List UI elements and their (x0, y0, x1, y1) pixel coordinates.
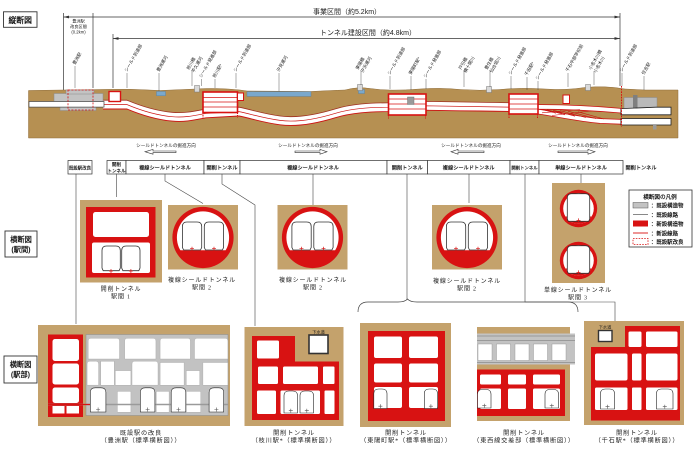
svg-text:シールド到達部: シールド到達部 (123, 42, 145, 73)
svg-text:複線シールドトンネル: 複線シールドトンネル (168, 276, 236, 284)
svg-text:汐見運河: 汐見運河 (275, 54, 290, 73)
svg-text:豊洲駅: 豊洲駅 (71, 51, 84, 66)
svg-text:シールドトンネルの掘進方向: シールドトンネルの掘進方向 (278, 142, 338, 149)
svg-text:（枝川駅*（標準横断図））: （枝川駅*（標準横断図）） (252, 437, 337, 445)
svg-text:開削トンネル: 開削トンネル (625, 164, 657, 172)
svg-text:開削トンネル: 開削トンネル (101, 285, 142, 293)
svg-text:横断図の凡例: 横断図の凡例 (643, 193, 677, 201)
svg-text:複線シールドトンネル: 複線シールドトンネル (433, 277, 501, 285)
svg-text:(駅間): (駅間) (11, 245, 31, 254)
svg-text:シールド到達部: シールド到達部 (618, 42, 640, 73)
svg-text:複線シールドトンネル: 複線シールドトンネル (442, 164, 496, 172)
svg-text:駅間 2: 駅間 2 (457, 286, 477, 293)
svg-text:シールドトンネルの掘進方向: シールドトンネルの掘進方向 (136, 142, 196, 149)
svg-text:複線シールドトンネル: 複線シールドトンネル (138, 164, 192, 172)
svg-text:開削トンネル: 開削トンネル (206, 164, 238, 172)
svg-text:下水道: 下水道 (599, 324, 612, 331)
svg-text:：既設構造物: ：既設構造物 (651, 202, 684, 210)
svg-text:横断図: 横断図 (10, 360, 32, 369)
svg-text:単線シールドトンネル: 単線シールドトンネル (555, 164, 608, 172)
svg-text:駅間 1: 駅間 1 (111, 294, 131, 301)
svg-text:：既設駅改良: ：既設駅改良 (651, 238, 684, 246)
svg-text:トンネル: トンネル (107, 168, 126, 175)
svg-text:駅間 2: 駅間 2 (192, 285, 212, 292)
svg-text:トンネル建設区間（約4.8km）: トンネル建設区間（約4.8km） (320, 28, 416, 37)
svg-text:開削トンネル: 開削トンネル (273, 429, 315, 437)
svg-text:開削: 開削 (112, 161, 122, 168)
svg-text:：既設線路: ：既設線路 (651, 211, 679, 219)
svg-text:単線シールドトンネル: 単線シールドトンネル (544, 286, 612, 294)
svg-text:シールドトンネルの掘進方向: シールドトンネルの掘進方向 (548, 142, 608, 149)
svg-text:（東西線交差部（標準横断図））: （東西線交差部（標準横断図）） (473, 437, 575, 445)
svg-text:（豊洲駅（標準横断図））: （豊洲駅（標準横断図）） (101, 437, 182, 445)
svg-text:開削トンネル: 開削トンネル (392, 164, 424, 172)
svg-text:シールド発進部: シールド発進部 (422, 48, 444, 79)
svg-text:複線シールドトンネル: 複線シールドトンネル (279, 276, 347, 284)
svg-text:開削トンネル: 開削トンネル (503, 429, 545, 437)
svg-text:千石中部学校前: 千石中部学校前 (564, 42, 586, 73)
svg-text:：新設線路: ：新設線路 (651, 230, 679, 238)
svg-text:既設駅の改良: 既設駅の改良 (120, 429, 162, 437)
svg-text:シールド発進部: シールド発進部 (534, 50, 556, 81)
svg-text:千田駅*: 千田駅* (523, 60, 537, 77)
svg-text:（東陽町駅*（標準横断図））: （東陽町駅*（標準横断図）） (360, 437, 452, 445)
svg-text:（千石駅*（標準横断図））: （千石駅*（標準横断図）） (595, 437, 680, 445)
svg-text:シールド到達部: シールド到達部 (232, 42, 254, 73)
svg-text:豊洲運河: 豊洲運河 (155, 54, 170, 73)
svg-text:複線シールドトンネル: 複線シールドトンネル (286, 164, 340, 172)
svg-text:住吉駅: 住吉駅 (640, 61, 653, 76)
svg-text:(駅部): (駅部) (11, 370, 31, 379)
svg-text:シールドトンネルの掘進方向: シールドトンネルの掘進方向 (441, 142, 501, 149)
svg-text:(0.2km): (0.2km) (71, 30, 86, 35)
svg-text:：新設構造物: ：新設構造物 (651, 220, 684, 228)
svg-text:シールド到達部: シールド到達部 (386, 45, 408, 76)
svg-text:横断図: 横断図 (10, 235, 32, 244)
svg-text:東陽町駅*: 東陽町駅* (407, 56, 423, 76)
svg-text:開削トンネル: 開削トンネル (511, 165, 538, 172)
svg-text:駅間 3: 駅間 3 (568, 295, 588, 302)
svg-text:事業区間（約5.2km）: 事業区間（約5.2km） (313, 7, 381, 16)
svg-text:縦断図: 縦断図 (9, 15, 33, 25)
svg-text:開削トンネル: 開削トンネル (385, 429, 427, 437)
svg-text:枝川駅*: 枝川駅* (211, 62, 225, 79)
svg-text:既設駅改良: 既設駅改良 (69, 165, 92, 172)
svg-text:開削トンネル: 開削トンネル (616, 429, 658, 437)
svg-text:駅間 2: 駅間 2 (303, 285, 323, 292)
